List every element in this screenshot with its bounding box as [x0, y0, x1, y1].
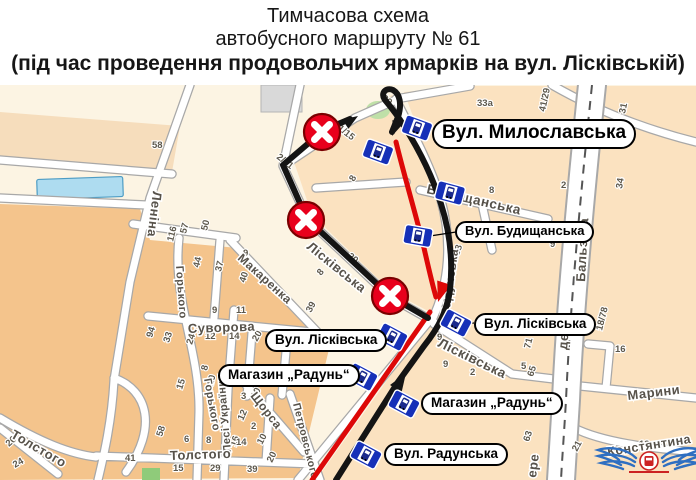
- route-scheme-page: 583933а41/293141/152/5188234193820811657…: [0, 0, 696, 480]
- house-number: 33а: [477, 98, 494, 109]
- house-number: 3: [241, 391, 246, 402]
- house-number: 9: [443, 359, 448, 370]
- house-number: 41: [125, 453, 136, 464]
- house-number: 11: [236, 305, 247, 316]
- bus-stop-icon: [403, 224, 434, 248]
- park-patch-bottom: [142, 468, 160, 480]
- house-number: 39: [247, 464, 258, 475]
- title-line-3: (під час проведення продовольчих ярмаркі…: [0, 51, 696, 76]
- house-number: 16: [615, 344, 626, 355]
- house-number: 9: [212, 305, 217, 316]
- house-number: 2: [470, 367, 475, 378]
- title-line-2: автобусного маршруту № 61: [0, 28, 696, 51]
- street-name: Толстого: [170, 446, 232, 463]
- scheme-title: Тимчасова схема автобусного маршруту № 6…: [0, 0, 696, 85]
- house-number: 58: [152, 140, 163, 151]
- street-name: де: [555, 333, 571, 351]
- house-number: 9: [550, 239, 555, 250]
- house-number: 6: [184, 434, 189, 445]
- logo-tram-icon: [645, 456, 654, 466]
- title-line-1: Тимчасова схема: [0, 0, 696, 28]
- house-number: 8: [489, 185, 494, 196]
- route-closed-marker: [288, 202, 324, 238]
- house-number: 29: [210, 463, 221, 474]
- route-closed-marker: [304, 114, 340, 150]
- house-number: 14: [236, 437, 247, 448]
- street-name: ере: [524, 453, 542, 479]
- house-number: 15: [173, 463, 184, 474]
- house-number: 2: [561, 180, 566, 191]
- street-name: Суворова: [188, 319, 256, 336]
- route-closed-marker: [372, 278, 408, 314]
- house-number: 2: [251, 421, 256, 432]
- house-number: 1: [554, 222, 560, 233]
- house-number: 8: [206, 435, 211, 446]
